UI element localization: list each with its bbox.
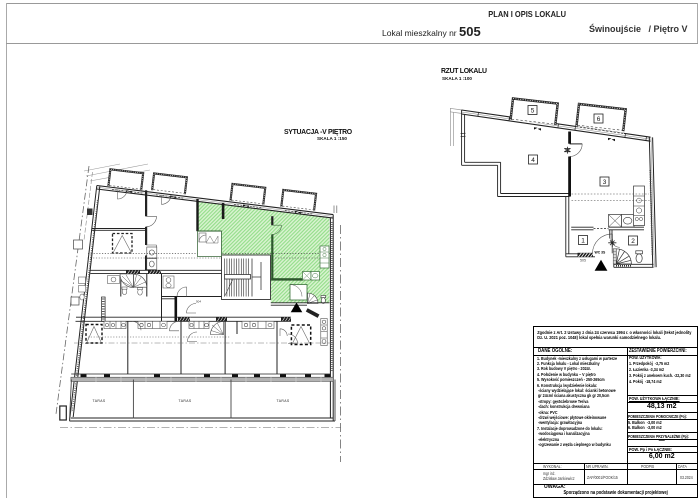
- svg-text:3: 3: [603, 179, 607, 186]
- svg-text:TARAS: TARAS: [92, 399, 105, 403]
- svg-text:TARAS: TARAS: [178, 399, 191, 403]
- svg-text:5: 5: [531, 108, 535, 115]
- svg-text:1: 1: [581, 238, 585, 245]
- svg-text:4: 4: [531, 157, 535, 164]
- svg-text:WC 3S: WC 3S: [595, 251, 606, 255]
- svg-text:505: 505: [580, 259, 586, 263]
- svg-text:2: 2: [631, 238, 635, 245]
- svg-text:6: 6: [597, 116, 601, 123]
- svg-text:TARAS: TARAS: [276, 399, 289, 403]
- svg-text:504: 504: [196, 300, 201, 304]
